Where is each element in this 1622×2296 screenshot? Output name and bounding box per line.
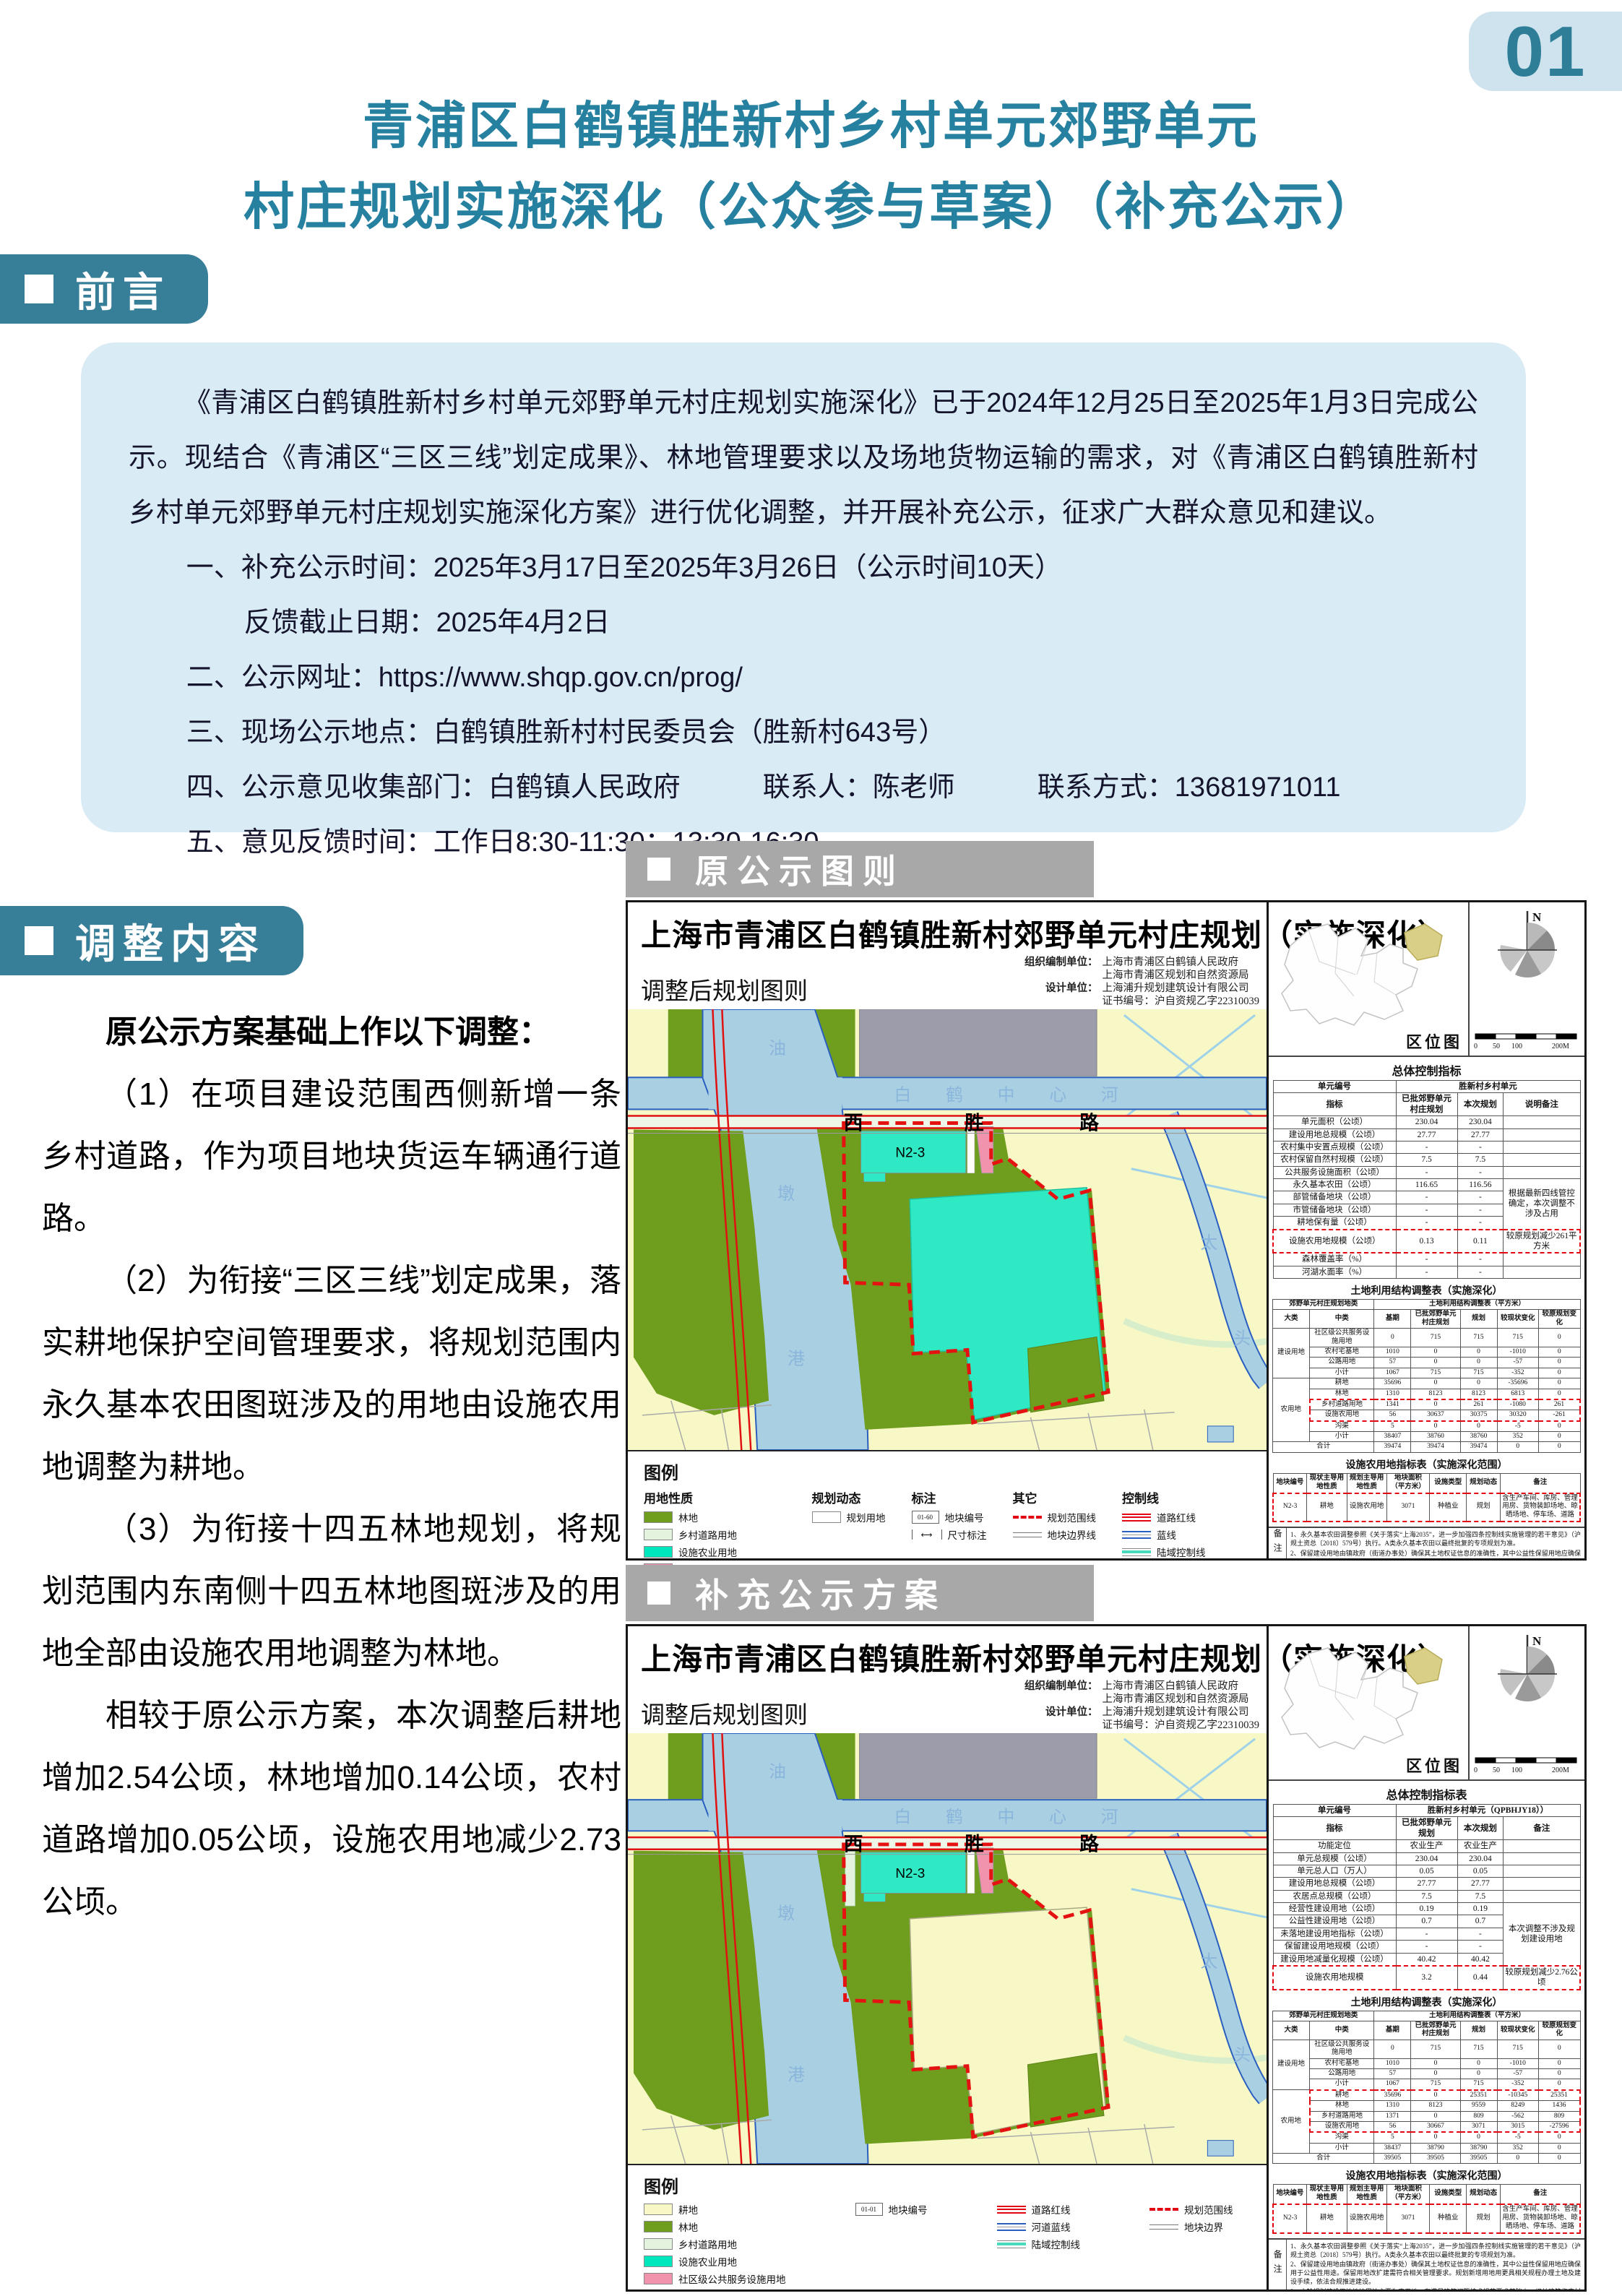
page-title-line1: 青浦区白鹤镇胜新村乡村单元郊野单元	[0, 85, 1622, 166]
river-label-v1: 油	[769, 1762, 786, 1782]
highlighted-village	[1405, 924, 1442, 960]
boundary-line-icon	[1013, 1516, 1042, 1519]
dimension-icon: ⟷	[912, 1529, 942, 1540]
adjust-item-2: （2）为衔接“三区三线”划定成果，落实耕地保护空间管理要求，将规划范围内永久基本…	[42, 1250, 621, 1498]
table-row: 林地13108123812368130	[1273, 1389, 1581, 1399]
table-row: 郊野单元村庄规划地类土地利用结构调整表（平方米）	[1273, 2011, 1581, 2021]
table-row: 沟渠500-50	[1273, 1421, 1581, 1432]
land-control-line-icon	[1122, 1548, 1151, 1556]
forest-patch	[668, 1009, 703, 1078]
svg-text:50: 50	[1493, 1043, 1500, 1050]
svg-text:0: 0	[1474, 1043, 1478, 1050]
compass-icon: N	[1488, 1629, 1567, 1716]
forest-swatch	[644, 2221, 673, 2232]
square-bullet-icon	[25, 275, 53, 303]
forest-inner-patch	[1027, 1337, 1104, 1412]
page-title: 青浦区白鹤镇胜新村乡村单元郊野单元 村庄规划实施深化（公众参与草案）（补充公示）	[0, 85, 1622, 247]
location-map: 区位图	[1269, 1626, 1468, 1779]
map-credits: 组织编制单位： 上海市青浦区白鹤镇人民政府 上海市青浦区规划和自然资源局 设计单…	[1024, 956, 1259, 1008]
figure1-sidebar: 区位图 N	[1267, 902, 1584, 1558]
boundary-line-icon	[1149, 2208, 1178, 2211]
table-row: 森林覆盖率（%）--	[1273, 1253, 1580, 1266]
table-row: 功能定位农业生产农业生产	[1273, 1840, 1580, 1852]
legend-group-usage: 耕地 林地 乡村道路用地 设施农业用地 社区级公共服务设施用地	[644, 2202, 786, 2289]
river-label-horizontal: 白 鹤 中 心 河	[894, 1085, 1118, 1105]
section-label: 调整内容	[75, 912, 266, 970]
table-row: 建设用地社区级公共服务设施用地07157157150	[1273, 2040, 1581, 2058]
notice-item-location: 三、现场公示地点：白鹤镇胜新村村民委员会（胜新村643号）	[186, 705, 1478, 760]
figure2-header-label: 补充公示方案	[695, 1569, 946, 1617]
parcel-number-icon: 01-01	[855, 2203, 883, 2216]
legend-group-annotation: 01-01地块编号	[855, 2202, 928, 2219]
location-minimap	[1269, 1626, 1468, 1774]
compass-scale-cell: N 0 50	[1468, 902, 1584, 1056]
road-label-2: 胜	[965, 1112, 984, 1134]
table-row: 农村宅基地101000-10100	[1273, 1347, 1581, 1357]
figure1-legend: 图例 用地性质 林地 乡村道路用地 设施农业用地 社区级公共服务设施用地 规划动…	[628, 1450, 1267, 1579]
table-row: 单元总人口（万人）0.050.05	[1273, 1865, 1580, 1877]
land-control-line-icon	[997, 2240, 1026, 2248]
table-row: 农居点总规模（公顷）7.57.5	[1273, 1890, 1580, 1902]
legend-group-control: 道路红线 河道蓝线 陆域控制线	[997, 2202, 1081, 2254]
table-row: 指标已批郊野单元规划本次规划备注	[1273, 1817, 1580, 1840]
river-label-r1: 太	[1200, 1952, 1217, 1972]
note-item: 1、永久基本农田调整参照《关于落实“上海2035”，进一步加强四条控制线实施管理…	[1290, 2242, 1581, 2259]
figure1-header: 原公示图则	[626, 841, 1094, 897]
adjust-item-3: （3）为衔接十四五林地规划，将规划范围内东南侧十四五林地图斑涉及的用地全部由设施…	[42, 1498, 621, 1685]
facility-table: 地块编号现状主导用地性质规划主导用地性质地块面积（平方米）设施类型规划动态备注N…	[1272, 1473, 1581, 1522]
figure2-header: 补充公示方案	[626, 1565, 1094, 1621]
table-row: 建设用地社区级公共服务设施用地07157157150	[1273, 1329, 1581, 1347]
notice-item-department: 四、公示意见收集部门：白鹤镇人民政府 联系人：陈老师 联系方式：13681971…	[186, 760, 1478, 815]
location-map-label: 区位图	[1406, 1030, 1462, 1053]
square-bullet-icon	[647, 858, 670, 881]
overall-table-title: 总体控制指标	[1269, 1061, 1584, 1079]
adjust-summary: 相较于原公示方案，本次调整后耕地增加2.54公顷，林地增加0.14公顷，农村道路…	[42, 1685, 621, 1933]
page-number: 01	[1504, 11, 1586, 92]
figure1-title-block: 上海市青浦区白鹤镇胜新村郊野单元村庄规划（实施深化） 调整后规划图则 组织编制单…	[628, 902, 1267, 1009]
table-row: N2-3耕地设施农用地3071种植业规划含生产车间、库房、管理用房、货物装卸场地…	[1273, 2204, 1580, 2233]
road-label-2: 胜	[965, 1834, 984, 1855]
table-row: 单元面积（公顷）230.04230.04	[1273, 1116, 1580, 1128]
credit-value: 上海浦升规划建筑设计有限公司	[1103, 1706, 1260, 1719]
preface-paragraph: 《青浦区白鹤镇胜新村乡村单元郊野单元村庄规划实施深化》已于2024年12月25日…	[129, 376, 1478, 540]
adjust-item-1: （1）在项目建设范围西侧新增一条乡村道路，作为项目地块货运车辆通行道路。	[42, 1063, 621, 1250]
adjustment-text: 原公示方案基础上作以下调整： （1）在项目建设范围西侧新增一条乡村道路，作为项目…	[42, 1001, 621, 1933]
legend-group-other: 规划范围线 地块边界	[1149, 2202, 1233, 2237]
adjust-lead: 原公示方案基础上作以下调整：	[42, 1001, 621, 1063]
figure2-plan-map: 白 鹤 中 心 河 油 墩 港 太 头 西 胜 路 N2-3	[628, 1733, 1267, 2164]
river-label-r1: 太	[1200, 1233, 1217, 1253]
square-bullet-icon	[647, 1581, 670, 1605]
river-label-r2: 头	[1233, 1329, 1251, 1348]
farmland-swatch	[644, 2204, 673, 2215]
river-label-horizontal: 白 鹤 中 心 河	[894, 1808, 1118, 1827]
figure2-legend: 图例 耕地 林地 乡村道路用地 设施农业用地 社区级公共服务设施用地 01-01…	[628, 2164, 1267, 2289]
credit-label: 设计单位：	[1024, 982, 1098, 995]
table-row: 公路用地5700-570	[1273, 2068, 1581, 2079]
notice-item-url: 二、公示网址：https://www.shqp.gov.cn/prog/	[186, 650, 1478, 705]
road-label-1: 西	[844, 1112, 863, 1134]
table-row: 农用地耕地35696025351-1034525351	[1273, 2090, 1581, 2101]
table-row: 指标已批郊野单元村庄规划本次规划说明备注	[1273, 1093, 1580, 1116]
parcel-label: N2-3	[895, 1865, 925, 1881]
landuse-table: 郊野单元村庄规划地类土地利用结构调整表（平方米）大类中类基期已批郊野单元村庄规划…	[1272, 2011, 1581, 2165]
page-title-line2: 村庄规划实施深化（公众参与草案）（补充公示）	[0, 166, 1622, 247]
river-label-v2: 墩	[777, 1904, 795, 1923]
location-map-label: 区位图	[1406, 1753, 1462, 1777]
table-row: 建设用地总规模（公顷）27.7727.77	[1273, 1878, 1580, 1890]
table-row: 乡村道路用地13710809-562809	[1273, 2111, 1581, 2121]
facility-swatch	[644, 1546, 673, 1558]
table-row: 沟渠500-50	[1273, 2132, 1581, 2143]
credit-value: 上海市青浦区白鹤镇人民政府	[1103, 956, 1260, 969]
table-row: 农村保留自然村规模（公顷）7.57.5	[1273, 1154, 1580, 1166]
road-red-line-icon	[997, 2206, 1026, 2214]
credit-label: 组织编制单位：	[1024, 1680, 1098, 1693]
forest-swatch	[644, 1511, 673, 1523]
landuse-table: 郊野单元村庄规划地类土地利用结构调整表（平方米）大类中类基期已批郊野单元村庄规划…	[1272, 1299, 1581, 1453]
notes-body: 1、永久基本农田调整参照《关于落实“上海2035”，进一步加强四条控制线实施管理…	[1287, 2240, 1584, 2289]
river-junction	[708, 1077, 842, 1109]
table-row: 小计3840738760387603520	[1273, 1432, 1581, 1442]
legend-group-control: 控制线 道路红线 蓝线 陆域控制线	[1122, 1488, 1206, 1562]
road-label-1: 西	[844, 1834, 863, 1855]
credit-value: 上海市青浦区规划和自然资源局	[1103, 1693, 1260, 1706]
svg-text:200M: 200M	[1552, 1043, 1569, 1050]
credit-value: 上海市青浦区白鹤镇人民政府	[1103, 1680, 1260, 1693]
parcel-line-icon	[1013, 1532, 1042, 1537]
credit-label: 设计单位：	[1024, 1706, 1098, 1719]
overall-indicators-table: 单元编号胜新村乡村单元指标已批郊野单元村庄规划本次规划说明备注单元面积（公顷）2…	[1272, 1080, 1581, 1279]
notice-item-deadline: 反馈截止日期：2025年4月2日	[244, 595, 1478, 650]
forest-patch	[668, 1733, 703, 1800]
overall-indicators-table: 单元编号胜新村乡村单元（QPBHJY18））指标已批郊野单元规划本次规划备注功能…	[1272, 1804, 1581, 1990]
preface-card: 《青浦区白鹤镇胜新村乡村单元郊野单元村庄规划实施深化》已于2024年12月25日…	[81, 342, 1526, 832]
svg-text:N: N	[1532, 1634, 1542, 1648]
svg-text:0: 0	[1474, 1766, 1478, 1774]
table-row: 小计3843738790387903520	[1273, 2143, 1581, 2153]
map-notes: 备注 1、永久基本农田调整参照《关于落实“上海2035”，进一步加强四条控制线实…	[1269, 1527, 1584, 1558]
map-notes: 备注 1、永久基本农田调整参照《关于落实“上海2035”，进一步加强四条控制线实…	[1269, 2238, 1584, 2289]
map-subtitle: 调整后规划图则	[641, 972, 808, 1006]
notes-label: 备注	[1269, 1528, 1287, 1558]
table-row: 设施农用地563066730713015-27596	[1273, 2121, 1581, 2132]
facility-table-title: 设施农用地指标表（实施深化范围）	[1269, 2168, 1584, 2183]
facility-table: 地块编号现状主导用地性质规划主导用地性质地块面积（平方米）设施类型规划动态备注N…	[1272, 2184, 1581, 2233]
blue-line-icon	[1122, 1531, 1151, 1539]
overall-table-title: 总体控制指标表	[1269, 1785, 1584, 1803]
table-row: 公共服务设施面积（公顷）--	[1273, 1166, 1580, 1178]
table-row: 设施农用地56306373037530320-261	[1273, 1410, 1581, 1421]
road-label-3: 路	[1079, 1834, 1099, 1855]
map-subtitle: 调整后规划图则	[641, 1696, 808, 1730]
figure2-map-main: 上海市青浦区白鹤镇胜新村郊野单元村庄规划（实施深化） 调整后规划图则 组织编制单…	[628, 1626, 1267, 2289]
credit-value: 上海市青浦区规划和自然资源局	[1103, 969, 1260, 982]
facility-swatch	[644, 2256, 673, 2267]
table-row: 地块编号现状主导用地性质规划主导用地性质地块面积（平方米）设施类型规划动态备注	[1273, 2185, 1580, 2204]
legend-title: 图例	[644, 1459, 1252, 1484]
table-row: 郊野单元村庄规划地类土地利用结构调整表（平方米）	[1273, 1300, 1581, 1310]
table-row: 合计39474394743947400	[1273, 1442, 1581, 1452]
credit-value: 证书编号：沪自资规乙字22310039	[1103, 995, 1260, 1008]
table-row: 农村宅基地101000-10100	[1273, 2058, 1581, 2068]
legend-title: 图例	[644, 2172, 1252, 2198]
location-minimap	[1269, 902, 1468, 1050]
river-label-r2: 头	[1233, 2045, 1251, 2065]
planned-land-swatch	[812, 1511, 841, 1523]
credit-value: 证书编号：沪自资规乙字22310039	[1103, 1719, 1260, 1732]
river-blue-line-icon	[997, 2223, 1026, 2231]
built-area-block	[860, 1733, 1097, 1798]
note-item: 3、本轮规划建设用地地块周边主要为农用地，在满足建筑间距技术规范要求基础上，相关…	[1290, 2287, 1581, 2289]
built-area-block	[860, 1009, 1097, 1076]
facility-table-title: 设施农用地指标表（实施深化范围）	[1269, 1457, 1584, 1472]
compass-scale-cell: N 0 50	[1468, 1626, 1584, 1779]
parcel-number-icon: 01-60	[912, 1511, 939, 1524]
notice-item-time: 一、补充公示时间：2025年3月17日至2025年3月26日（公示时间10天）	[186, 540, 1478, 595]
section-header-preface: 前言	[0, 254, 208, 324]
note-item: 1、永久基本农田调整参照《关于落实“上海2035”，进一步加强四条控制线实施管理…	[1290, 1530, 1581, 1548]
map-credits: 组织编制单位： 上海市青浦区白鹤镇人民政府 上海市青浦区规划和自然资源局 设计单…	[1024, 1680, 1259, 1732]
river-label-v3: 港	[788, 1350, 805, 1369]
notes-body: 1、永久基本农田调整参照《关于落实“上海2035”，进一步加强四条控制线实施管理…	[1287, 1528, 1584, 1558]
section-label: 前言	[75, 260, 171, 319]
river-label-v3: 港	[788, 2065, 805, 2084]
svg-text:N: N	[1532, 910, 1542, 924]
svg-text:100: 100	[1511, 1043, 1522, 1050]
table-row: 农用地耕地3569600-356960	[1273, 1378, 1581, 1389]
legend-group-annotation: 标注 01-60地块编号 ⟷尺寸标注	[912, 1488, 987, 1545]
legend-group-other: 其它 规划范围线 地块边界线	[1013, 1488, 1097, 1545]
parcel-label: N2-3	[895, 1146, 925, 1161]
table-row: 建设用地总规模（公顷）27.7727.77	[1273, 1128, 1580, 1141]
parcel-line-icon	[1149, 2224, 1178, 2230]
credit-label: 组织编制单位：	[1024, 956, 1098, 969]
river-junction	[708, 1800, 842, 1831]
svg-text:50: 50	[1493, 1766, 1500, 1774]
community-swatch	[644, 2273, 673, 2284]
table-row: 永久基本农田（公顷）116.65116.56根据最新四线管控确定，本次调整不涉及…	[1273, 1179, 1580, 1191]
figure2-map-panel: 上海市青浦区白鹤镇胜新村郊野单元村庄规划（实施深化） 调整后规划图则 组织编制单…	[626, 1624, 1587, 2292]
location-map: 区位图	[1269, 902, 1468, 1056]
square-bullet-icon	[25, 926, 53, 955]
table-row: 单元编号胜新村乡村单元	[1273, 1081, 1580, 1093]
location-row: 区位图 N	[1269, 1626, 1584, 1781]
legend-group-dynamic: 规划动态 规划用地	[812, 1488, 886, 1527]
rural-road-swatch	[644, 2238, 673, 2250]
svg-text:100: 100	[1511, 1766, 1522, 1774]
table-row: 小计1067715715-3520	[1273, 2079, 1581, 2090]
table-row: 单元编号胜新村乡村单元（QPBHJY18））	[1273, 1805, 1580, 1817]
figure1-plan-map: 白 鹤 中 心 河 油 墩 港 太 头 西 胜 路 N2-3	[628, 1009, 1267, 1450]
road-label-3: 路	[1079, 1111, 1100, 1134]
landuse-table-title: 土地利用结构调整表（实施深化）	[1269, 1283, 1584, 1298]
table-row: 林地13108123955982491436	[1273, 2101, 1581, 2111]
highlighted-village	[1405, 1648, 1442, 1684]
table-row: 单元总规模（公顷）230.04230.04	[1273, 1852, 1580, 1865]
landuse-table-title: 土地利用结构调整表（实施深化）	[1269, 1995, 1584, 2009]
figure1-header-label: 原公示图则	[695, 845, 905, 893]
table-row: 经营性建设用地（公顷）0.190.19本次调整不涉及规划建设用地	[1273, 1903, 1580, 1915]
road-red-line-icon	[1122, 1514, 1151, 1522]
table-row: 公路用地5700-570	[1273, 1358, 1581, 1368]
table-row: 小计1067715715-3520	[1273, 1368, 1581, 1378]
river-label-v2: 墩	[777, 1184, 795, 1204]
new-rural-road	[845, 1850, 855, 1906]
note-item: 2、保留建设用地由镇政府（街道办事处）确保其土地权证信息的准确性，其中公益性保留…	[1290, 2260, 1581, 2286]
table-row: 乡村道路用地13410261-1080261	[1273, 1399, 1581, 1410]
river-label-v1: 油	[769, 1039, 786, 1058]
scale-bar: 0 50 100 200M	[1472, 1030, 1581, 1051]
svg-text:200M: 200M	[1552, 1766, 1569, 1774]
table-row: N2-3耕地设施农用地3071种植业规划含生产车间、库房、管理用房、货物装卸场地…	[1273, 1493, 1580, 1522]
page-number-badge: 01	[1469, 12, 1622, 91]
rural-road-swatch	[644, 1529, 673, 1540]
table-row: 设施农用地规模3.20.44较原规划减少2.76公顷	[1273, 1966, 1580, 1990]
figure2-sidebar: 区位图 N	[1267, 1626, 1584, 2289]
location-row: 区位图 N	[1269, 902, 1584, 1057]
forest-inner-patch	[1027, 2053, 1104, 2127]
section-header-adjust: 调整内容	[0, 906, 303, 975]
scale-bar: 0 50 100 200M	[1472, 1753, 1581, 1775]
table-row: 地块编号现状主导用地性质规划主导用地性质地块面积（平方米）设施类型规划动态备注	[1273, 1473, 1580, 1493]
note-item: 2、保留建设用地由镇政府（街道办事处）确保其土地权证信息的准确性，其中公益性保留…	[1290, 1549, 1581, 1558]
notes-label: 备注	[1269, 2240, 1287, 2289]
table-row: 河湖水面率（%）--	[1273, 1266, 1580, 1278]
page: 01 青浦区白鹤镇胜新村乡村单元郊野单元 村庄规划实施深化（公众参与草案）（补充…	[0, 0, 1622, 2296]
figure2-title-block: 上海市青浦区白鹤镇胜新村郊野单元村庄规划（实施深化） 调整后规划图则 组织编制单…	[628, 1626, 1267, 1733]
credit-value: 上海浦升规划建筑设计有限公司	[1103, 982, 1260, 995]
table-row: 设施农用地规模（公顷）0.130.11较原规划减少261平方米	[1273, 1230, 1580, 1253]
figure1-map-panel: 上海市青浦区白鹤镇胜新村郊野单元村庄规划（实施深化） 调整后规划图则 组织编制单…	[626, 900, 1587, 1561]
figure1-map-main: 上海市青浦区白鹤镇胜新村郊野单元村庄规划（实施深化） 调整后规划图则 组织编制单…	[628, 902, 1267, 1558]
table-row: 农村集中安置点规模（公顷）--	[1273, 1141, 1580, 1153]
compass-icon: N	[1488, 905, 1567, 992]
table-row: 大类中类基期已批郊野单元村庄规划规划较现状变化较原规划变化	[1273, 1310, 1581, 1329]
table-row: 大类中类基期已批郊野单元村庄规划规划较现状变化较原规划变化	[1273, 2021, 1581, 2040]
table-row: 合计39505395053950500	[1273, 2154, 1581, 2164]
